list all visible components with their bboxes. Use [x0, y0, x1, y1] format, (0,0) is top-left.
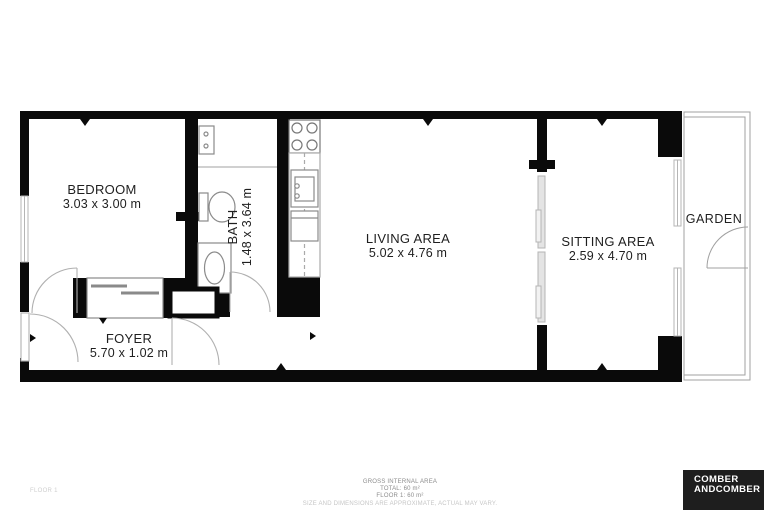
marker-triangle	[80, 119, 90, 126]
oven-icon	[291, 211, 318, 241]
wall-bath-kitchen	[277, 119, 290, 277]
living-dims: 5.02 x 4.76 m	[328, 246, 488, 261]
area-summary: GROSS INTERNAL AREA TOTAL: 60 m² FLOOR 1…	[274, 479, 526, 508]
wall-left-mid	[20, 262, 29, 312]
wall-divider-bottom	[537, 325, 547, 370]
garden-fence-outer	[684, 112, 750, 380]
wall-left-upper	[20, 111, 29, 196]
toilet-tank-icon	[199, 193, 208, 221]
foyer-name: FOYER	[59, 331, 199, 346]
sitting-label: SITTING AREA 2.59 x 4.70 m	[538, 234, 678, 264]
marker-triangle	[597, 363, 607, 370]
area-title: GROSS INTERNAL AREA	[274, 479, 526, 486]
sliding-panel-handle	[536, 286, 541, 318]
kitchen-fixtures	[289, 120, 320, 277]
bath-basin-tap-icon	[204, 132, 208, 136]
stove-burner-icon	[307, 123, 317, 133]
front-door-leaf	[21, 313, 29, 361]
bedroom-dims: 3.03 x 3.00 m	[32, 197, 172, 212]
garden-label: GARDEN	[680, 212, 748, 226]
living-name: LIVING AREA	[328, 231, 488, 246]
floor-number-label: FLOOR 1	[30, 488, 58, 494]
foyer-dims: 5.70 x 1.02 m	[59, 346, 199, 361]
marker-triangle	[99, 318, 107, 324]
wall-sitting-corner-top	[658, 119, 682, 157]
foyer-label: FOYER 5.70 x 1.02 m	[59, 331, 199, 361]
wall-divider-top	[537, 119, 547, 172]
stove-burner-icon	[292, 140, 302, 150]
garden-outline	[684, 112, 750, 380]
marker-arrow	[30, 334, 36, 342]
wall-kitchen-block	[277, 277, 320, 317]
logo-line2: ANDCOMBER	[694, 485, 764, 495]
garden-fence-inner	[684, 117, 745, 375]
kitchen-sink-tap-icon	[295, 184, 299, 188]
wall-top	[20, 111, 682, 119]
wardrobe-icon	[87, 278, 163, 318]
bath-basin-tap-icon	[204, 144, 208, 148]
bath-sink-basin-icon	[205, 252, 225, 284]
wall-stub-bedroom-left	[73, 278, 87, 318]
garden-name: GARDEN	[680, 212, 748, 226]
door-frame-tick	[547, 160, 555, 169]
bedroom-label: BEDROOM 3.03 x 3.00 m	[32, 182, 172, 212]
wall-sitting-corner-bottom	[658, 336, 682, 370]
marker-triangle	[276, 363, 286, 370]
bath-label: BATH 1.48 x 3.64 m	[225, 167, 259, 287]
bath-basin-icon	[199, 126, 214, 154]
floorplan-page: BEDROOM 3.03 x 3.00 m BATH 1.48 x 3.64 m…	[0, 0, 768, 512]
garden-gate-door-arc	[707, 227, 748, 268]
door-frame-tick	[176, 212, 185, 221]
living-label: LIVING AREA 5.02 x 4.76 m	[328, 231, 488, 261]
stove-burner-icon	[292, 123, 302, 133]
area-floor: FLOOR 1: 60 m²	[274, 493, 526, 500]
wall-bottom	[20, 370, 682, 382]
wall-bedroom-bath	[185, 119, 198, 287]
door-frame-tick	[529, 160, 537, 169]
marker-arrow	[310, 332, 316, 340]
sitting-name: SITTING AREA	[538, 234, 678, 249]
agency-logo: COMBER ANDCOMBER	[683, 470, 764, 510]
foyer-closet-icon	[170, 289, 217, 316]
area-disclaimer: SIZE AND DIMENSIONS ARE APPROXIMATE, ACT…	[274, 501, 526, 508]
sitting-dims: 2.59 x 4.70 m	[538, 249, 678, 264]
bath-dims: 1.48 x 3.64 m	[240, 167, 255, 287]
bedroom-name: BEDROOM	[32, 182, 172, 197]
kitchen-sink-tap-icon	[295, 194, 299, 198]
stove-burner-icon	[307, 140, 317, 150]
marker-triangle	[423, 119, 433, 126]
marker-triangle	[597, 119, 607, 126]
area-total: TOTAL: 60 m²	[274, 486, 526, 493]
bedroom-door-arc	[32, 268, 77, 313]
bath-name: BATH	[225, 167, 240, 287]
